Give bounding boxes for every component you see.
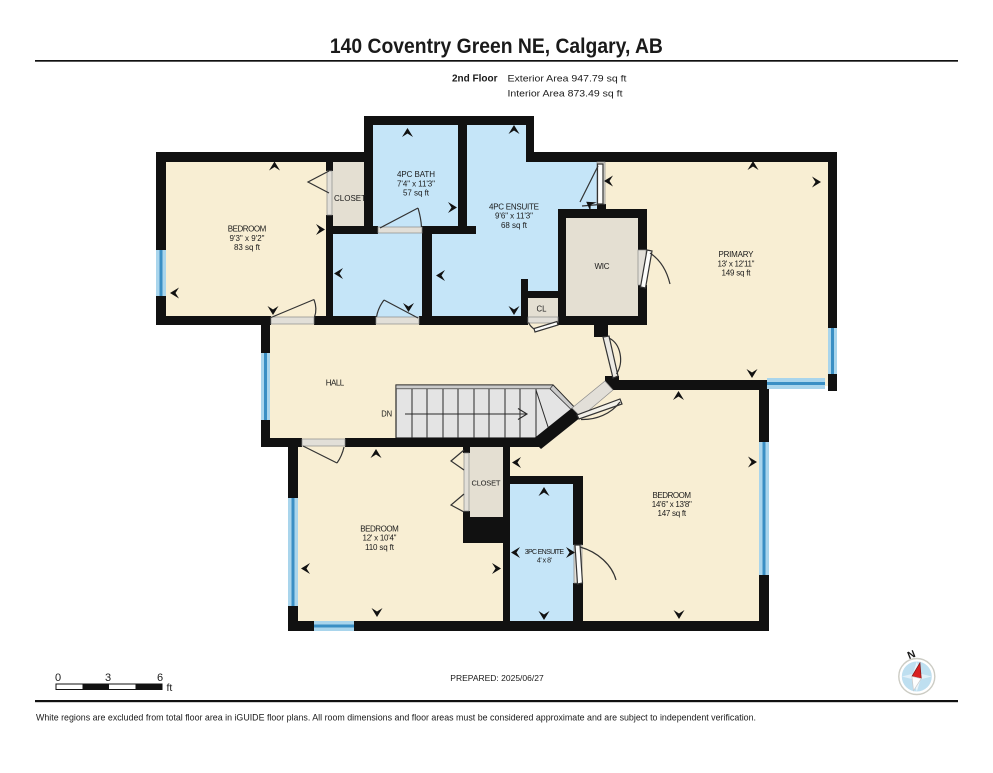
svg-text:BEDROOM: BEDROOM xyxy=(653,491,692,500)
svg-text:3PC ENSUITE: 3PC ENSUITE xyxy=(525,549,565,556)
svg-text:57 sq ft: 57 sq ft xyxy=(403,189,430,198)
svg-text:4PC BATH: 4PC BATH xyxy=(397,170,435,179)
svg-text:BEDROOM: BEDROOM xyxy=(228,225,267,234)
svg-text:CL: CL xyxy=(537,305,548,314)
svg-text:6: 6 xyxy=(157,672,163,684)
svg-text:ft: ft xyxy=(167,682,173,694)
svg-text:4PC ENSUITE: 4PC ENSUITE xyxy=(489,202,539,211)
svg-text:BEDROOM: BEDROOM xyxy=(360,524,399,533)
svg-text:HALL: HALL xyxy=(326,378,345,387)
svg-text:Exterior Area 947.79 sq ft: Exterior Area 947.79 sq ft xyxy=(508,74,627,85)
svg-text:110 sq ft: 110 sq ft xyxy=(365,543,395,552)
svg-text:3: 3 xyxy=(105,672,111,684)
svg-text:9'3" x 9'2": 9'3" x 9'2" xyxy=(230,234,265,243)
svg-text:147 sq ft: 147 sq ft xyxy=(658,509,687,518)
svg-text:White regions are excluded fro: White regions are excluded from total fl… xyxy=(36,713,756,723)
svg-text:PREPARED: 2025/06/27: PREPARED: 2025/06/27 xyxy=(450,673,544,683)
svg-text:14'6" x 13'8": 14'6" x 13'8" xyxy=(652,500,692,509)
svg-text:12' x 10'4": 12' x 10'4" xyxy=(363,534,397,543)
svg-text:Interior Area 873.49 sq ft: Interior Area 873.49 sq ft xyxy=(508,88,623,99)
svg-text:9'6" x 11'3": 9'6" x 11'3" xyxy=(495,212,533,221)
svg-text:149 sq ft: 149 sq ft xyxy=(722,269,752,278)
svg-text:WIC: WIC xyxy=(595,262,610,271)
svg-text:13' x 12'11": 13' x 12'11" xyxy=(718,259,755,268)
svg-text:PRIMARY: PRIMARY xyxy=(719,250,755,259)
svg-text:0: 0 xyxy=(55,672,61,684)
svg-text:140 Coventry Green NE, Calgary: 140 Coventry Green NE, Calgary, AB xyxy=(330,34,663,58)
svg-text:2nd Floor: 2nd Floor xyxy=(452,74,498,85)
svg-text:4' x 8': 4' x 8' xyxy=(537,557,552,564)
svg-text:CLOSET: CLOSET xyxy=(472,479,501,488)
svg-text:68 sq ft: 68 sq ft xyxy=(501,221,528,230)
svg-text:CLOSET: CLOSET xyxy=(334,194,366,203)
svg-text:83 sq ft: 83 sq ft xyxy=(234,243,261,252)
svg-text:7'4" x 11'3": 7'4" x 11'3" xyxy=(397,179,435,188)
svg-text:DN: DN xyxy=(381,409,392,419)
